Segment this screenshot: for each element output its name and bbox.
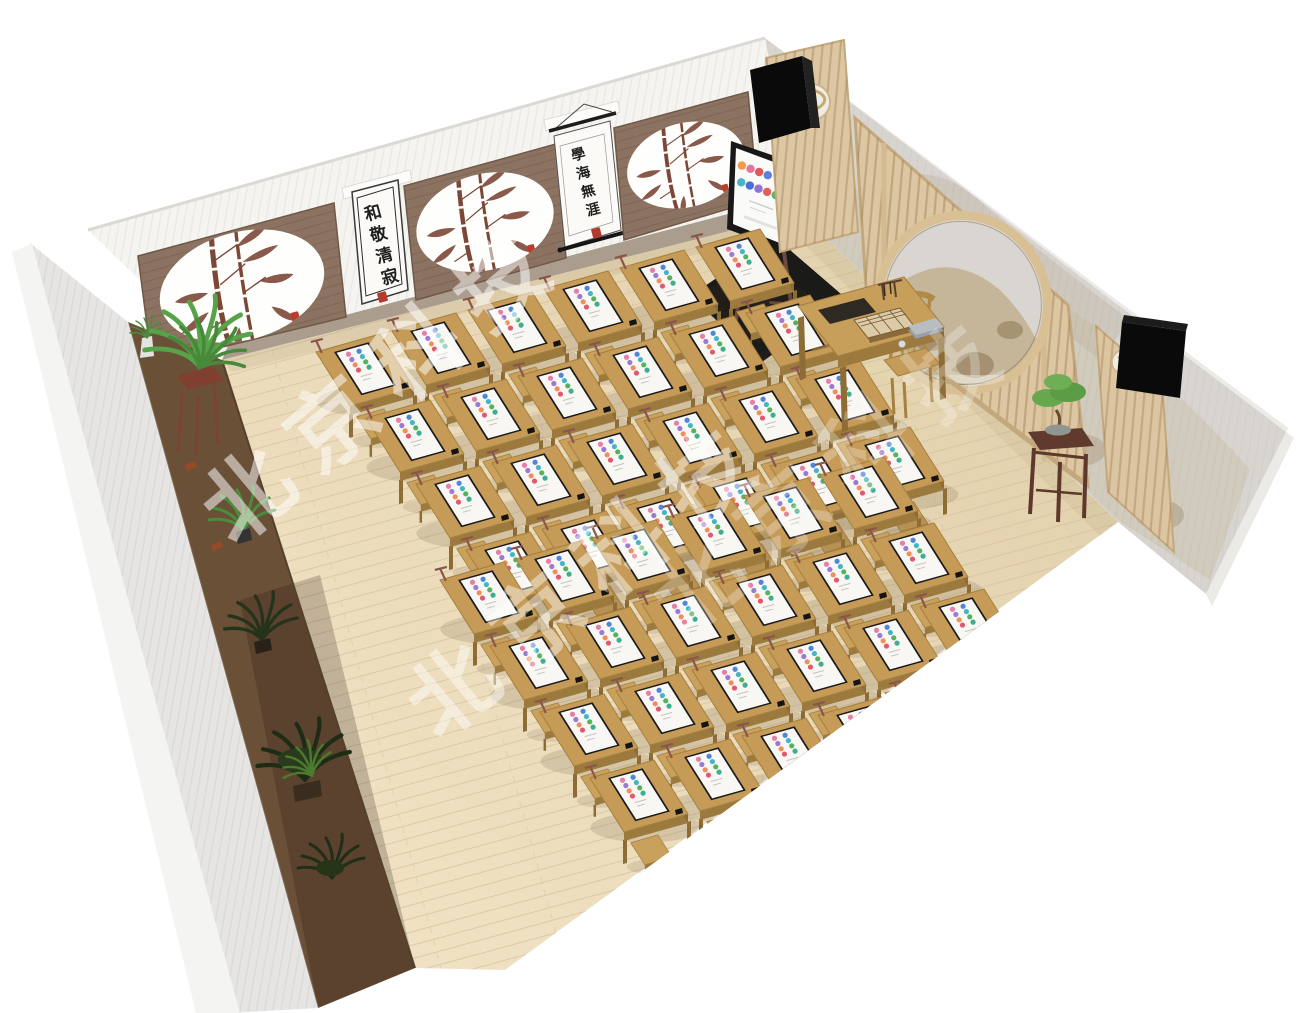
brush-rack — [965, 660, 977, 674]
student-stool — [881, 685, 929, 733]
bonsai-pot — [1045, 425, 1071, 436]
desk-screen — [912, 684, 974, 737]
desk-screen — [836, 705, 898, 758]
student-desk — [965, 655, 1083, 759]
student-stool — [931, 751, 979, 799]
student-stool — [957, 664, 1005, 712]
desk-camera — [1005, 637, 1013, 644]
desk-camera — [903, 745, 911, 752]
classroom-3d-render: 和敬清寂 學海無涯 北京科技 北京科技 北京科技 — [0, 0, 1296, 1013]
calligraphy-scroll-framed — [352, 180, 408, 304]
student-desk — [813, 697, 931, 801]
student-stool — [855, 772, 903, 820]
student-stool — [1007, 730, 1055, 778]
wall-speaker — [1116, 315, 1188, 398]
student-stool — [703, 814, 751, 862]
scene-svg — [0, 0, 1296, 1013]
brush-pot — [899, 341, 906, 348]
desk-camera — [1055, 703, 1063, 710]
student-desk — [889, 676, 1007, 780]
desk-camera — [979, 724, 987, 731]
desk-screen — [988, 663, 1050, 716]
student-stool — [779, 793, 827, 841]
desk-camera — [827, 766, 835, 773]
